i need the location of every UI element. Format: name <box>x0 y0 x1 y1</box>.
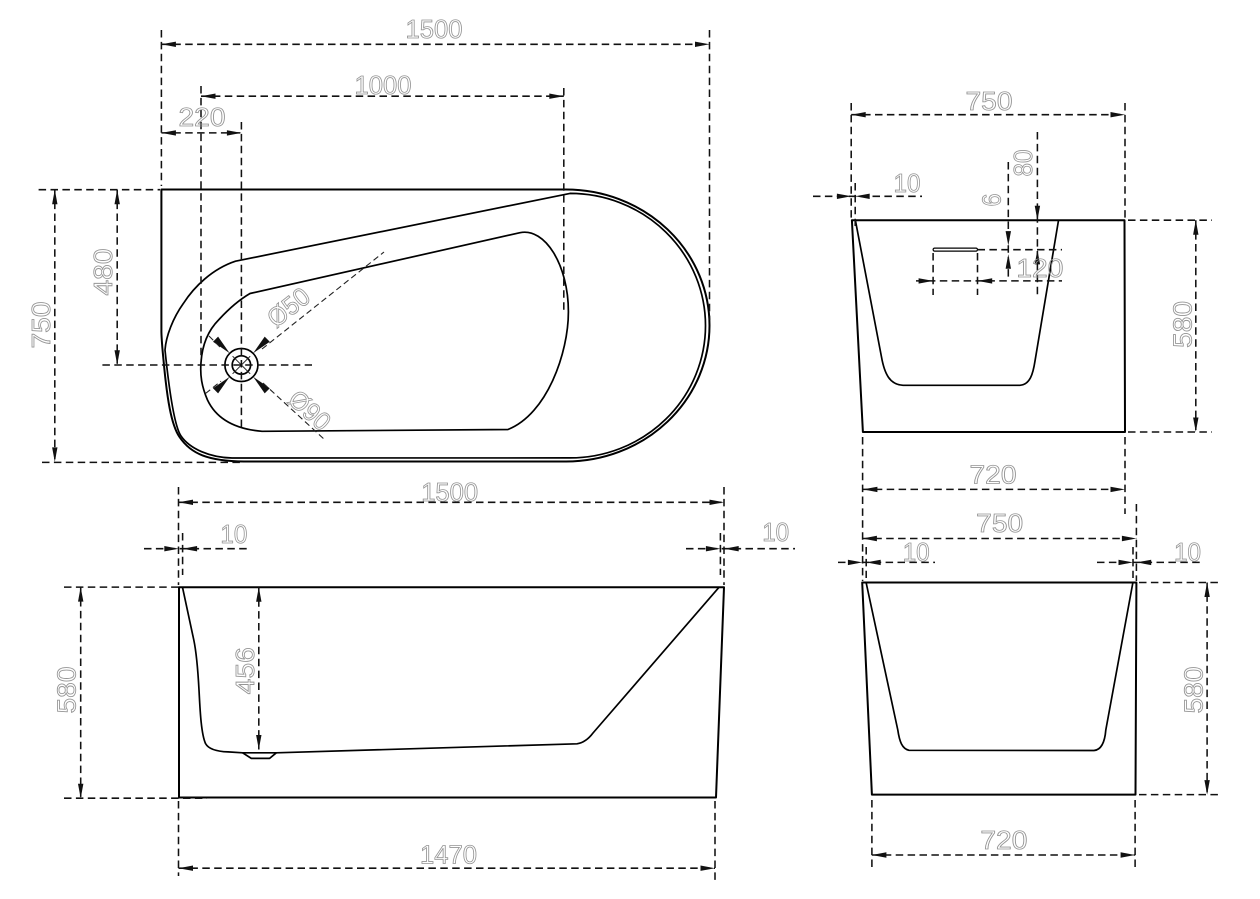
svg-text:1470: 1470 <box>420 839 477 869</box>
svg-text:456: 456 <box>230 647 260 694</box>
svg-text:1500: 1500 <box>421 477 478 507</box>
svg-text:750: 750 <box>26 302 56 349</box>
svg-text:10: 10 <box>762 517 789 547</box>
svg-text:720: 720 <box>980 825 1027 855</box>
svg-text:750: 750 <box>976 508 1023 538</box>
svg-text:580: 580 <box>1179 667 1209 714</box>
svg-text:1000: 1000 <box>355 70 412 100</box>
svg-text:220: 220 <box>179 102 226 132</box>
svg-text:10: 10 <box>1174 537 1201 567</box>
svg-text:10: 10 <box>903 537 930 567</box>
svg-text:120: 120 <box>1016 253 1063 283</box>
svg-text:720: 720 <box>970 460 1017 490</box>
svg-text:750: 750 <box>966 86 1013 116</box>
svg-text:10: 10 <box>894 168 921 198</box>
svg-text:10: 10 <box>220 519 247 549</box>
svg-text:6: 6 <box>976 194 1006 207</box>
svg-text:1500: 1500 <box>406 14 463 44</box>
svg-text:80: 80 <box>1008 150 1038 177</box>
svg-text:480: 480 <box>88 249 118 296</box>
svg-text:580: 580 <box>52 667 82 714</box>
svg-text:580: 580 <box>1167 301 1197 348</box>
